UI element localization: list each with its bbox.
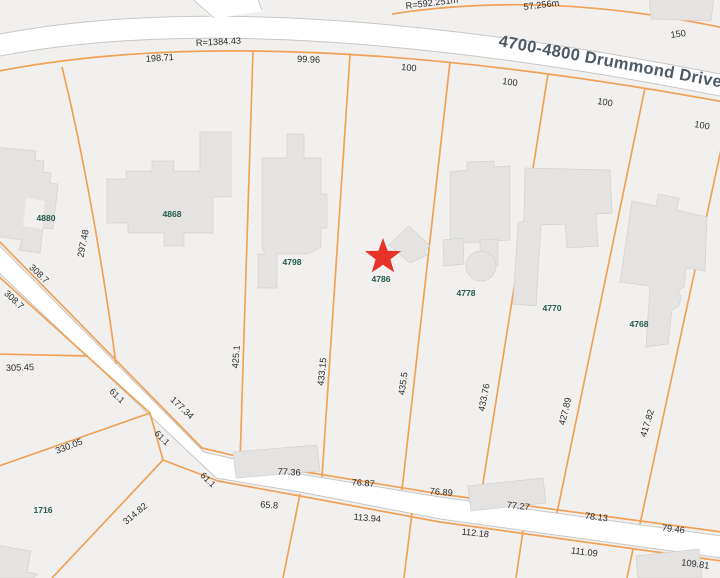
depth-label: 425.1 — [230, 345, 242, 369]
parcel-number: 4880 — [36, 213, 55, 223]
parcel-map[interactable]: 4700-4800 Drummond Drive R=1384.43 R=592… — [0, 0, 720, 578]
parcel-number: 1716 — [33, 505, 52, 515]
frontage-label: 77.36 — [277, 466, 300, 477]
frontage-label: 99.96 — [297, 54, 320, 65]
parcel-number: 4770 — [542, 303, 561, 313]
dim-label: 305.45 — [6, 362, 34, 373]
frontage-label: 65.8 — [260, 499, 279, 510]
frontage-label: 198.71 — [145, 52, 174, 64]
frontage-label: 100 — [401, 62, 417, 73]
parcel-number: 4786 — [371, 274, 390, 284]
frontage-label: 100 — [502, 76, 519, 88]
frontage-north-label: 150 — [670, 28, 687, 40]
frontage-label: 76.89 — [429, 486, 453, 498]
map-canvas: 4700-4800 Drummond Drive R=1384.43 R=592… — [0, 0, 720, 578]
parcel-number: 4768 — [629, 319, 648, 329]
building-top-right — [649, 0, 714, 21]
parcel-number: 4868 — [162, 209, 181, 219]
parcel-number: 4798 — [282, 257, 301, 267]
parcel-number: 4778 — [456, 288, 475, 298]
frontage-label: 76.87 — [351, 477, 375, 489]
